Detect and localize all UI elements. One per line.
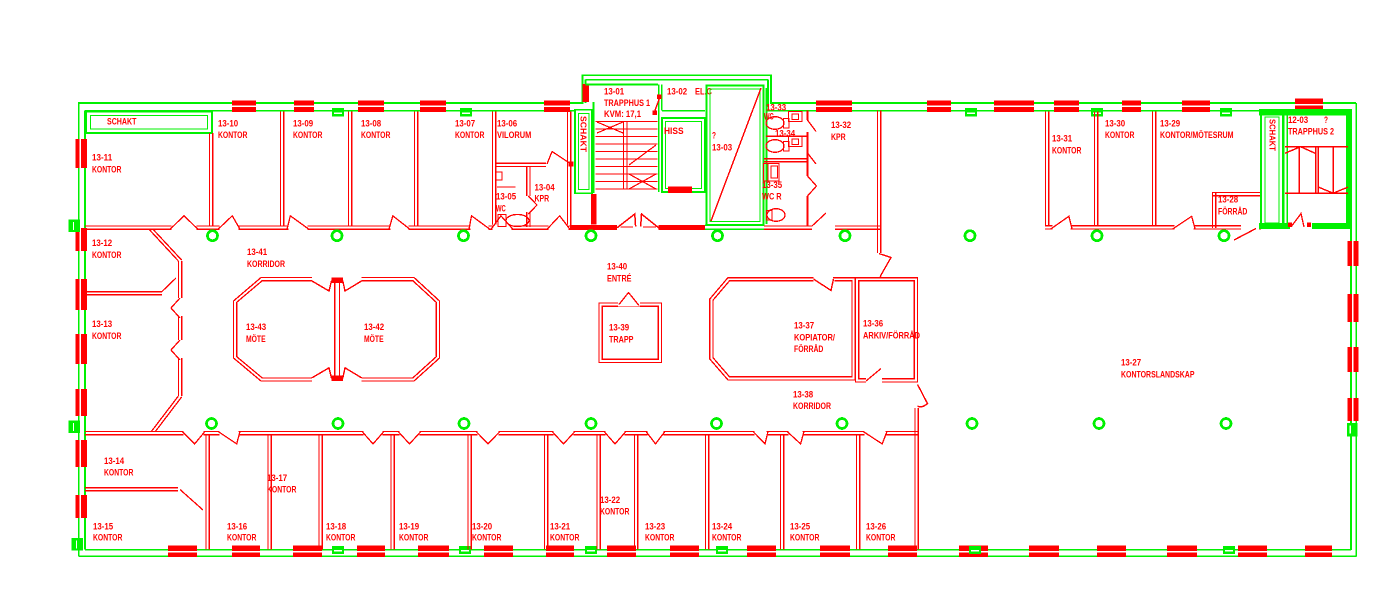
svg-text:13-27: 13-27 [1121,358,1141,369]
svg-text:KONTOR: KONTOR [1052,146,1081,157]
svg-text:KONTOR/MÖTESRUM: KONTOR/MÖTESRUM [1160,130,1234,141]
svg-text:?: ? [1324,115,1328,126]
svg-text:13-20: 13-20 [472,522,492,533]
svg-text:13-04: 13-04 [535,183,556,194]
svg-text:FÖRRÅD: FÖRRÅD [1218,207,1247,218]
svg-text:13-39: 13-39 [609,323,629,334]
svg-text:KONTOR: KONTOR [218,130,247,141]
svg-text:13-19: 13-19 [399,522,419,533]
svg-text:13-07: 13-07 [455,119,475,130]
svg-text:13-15: 13-15 [93,522,114,533]
svg-text:13-38: 13-38 [793,390,813,401]
svg-text:KONTOR: KONTOR [399,533,428,544]
svg-text:KORRIDOR: KORRIDOR [793,401,831,412]
svg-text:KONTOR: KONTOR [267,485,296,496]
svg-text:13-41: 13-41 [247,247,268,258]
svg-text:MÖTE: MÖTE [246,334,266,345]
svg-text:WC: WC [496,204,506,214]
svg-text:FÖRRÅD: FÖRRÅD [794,344,823,355]
svg-text:TRAPPHUS 1: TRAPPHUS 1 [604,98,651,109]
svg-text:13-31: 13-31 [1052,134,1073,145]
svg-text:13-21: 13-21 [550,522,571,533]
svg-text:KOPIATOR/: KOPIATOR/ [794,333,835,344]
svg-text:MÖTE: MÖTE [364,334,384,345]
svg-text:13-34: 13-34 [775,129,795,139]
svg-text:13-35: 13-35 [762,180,783,191]
svg-text:ARKIV/FÖRRÅD: ARKIV/FÖRRÅD [863,331,920,342]
svg-text:KONTOR: KONTOR [293,130,322,141]
svg-text:13-36: 13-36 [863,319,883,330]
svg-text:13-16: 13-16 [227,522,247,533]
svg-text:KPR: KPR [535,194,550,205]
svg-text:KONTOR: KONTOR [472,533,501,544]
svg-text:KONTOR: KONTOR [326,533,355,544]
svg-text:TRAPPHUS 2: TRAPPHUS 2 [1288,127,1334,138]
svg-text:KONTOR: KONTOR [227,533,256,544]
svg-text:13-43: 13-43 [246,322,266,333]
svg-text:13-37: 13-37 [794,321,814,332]
svg-text:13-32: 13-32 [831,120,851,131]
svg-text:KVM: 17,1: KVM: 17,1 [604,109,642,120]
svg-text:13-06: 13-06 [497,119,517,130]
svg-text:SCHAKT: SCHAKT [1268,119,1277,151]
svg-text:KONTORSLANDSKAP: KONTORSLANDSKAP [1121,370,1195,381]
svg-text:13-01: 13-01 [604,87,625,98]
svg-text:13-02: 13-02 [667,87,687,98]
svg-text:SCHAKT: SCHAKT [107,117,137,128]
svg-text:13-08: 13-08 [361,119,381,130]
svg-text:13-28: 13-28 [1218,195,1238,206]
svg-text:KONTOR: KONTOR [455,130,484,141]
svg-text:KONTOR: KONTOR [712,533,741,544]
svg-text:?: ? [712,131,716,142]
svg-text:TRAPP: TRAPP [609,335,634,346]
svg-text:13-13: 13-13 [92,319,112,330]
svg-text:KONTOR: KONTOR [1105,130,1134,141]
svg-text:12-03: 12-03 [1288,115,1308,126]
svg-text:13-42: 13-42 [364,322,384,333]
svg-text:KONTOR: KONTOR [93,533,122,544]
svg-text:KONTOR: KONTOR [790,533,819,544]
svg-text:13-22: 13-22 [600,495,620,506]
svg-text:13-30: 13-30 [1105,119,1125,130]
svg-text:HISS: HISS [664,126,684,137]
svg-text:KONTOR: KONTOR [866,533,895,544]
svg-text:KONTOR: KONTOR [92,250,121,261]
svg-text:SCHAKT: SCHAKT [579,116,588,152]
svg-text:KORRIDOR: KORRIDOR [247,259,285,270]
svg-text:KONTOR: KONTOR [550,533,579,544]
svg-text:ENTRÉ: ENTRÉ [607,274,632,285]
svg-text:13-23: 13-23 [645,522,665,533]
svg-text:13-17: 13-17 [267,473,287,484]
svg-text:KONTOR: KONTOR [92,331,121,342]
svg-text:VILORUM: VILORUM [497,130,531,141]
svg-text:KONTOR: KONTOR [92,165,121,176]
svg-text:13-11: 13-11 [92,153,113,164]
svg-text:KONTOR: KONTOR [645,533,674,544]
svg-text:13-40: 13-40 [607,262,627,273]
svg-text:13-18: 13-18 [326,522,346,533]
svg-text:13-24: 13-24 [712,522,733,533]
svg-text:13-14: 13-14 [104,456,125,467]
svg-text:13-12: 13-12 [92,238,112,249]
svg-text:KONTOR: KONTOR [361,130,390,141]
svg-text:13-26: 13-26 [866,522,886,533]
svg-text:13-10: 13-10 [218,119,238,130]
svg-text:KONTOR: KONTOR [104,468,133,479]
svg-text:13-09: 13-09 [293,119,313,130]
svg-text:WC R: WC R [762,192,782,203]
svg-text:13-03: 13-03 [712,143,732,154]
svg-text:WC: WC [764,112,774,122]
svg-text:13-25: 13-25 [790,522,811,533]
svg-text:13-05: 13-05 [496,192,516,202]
svg-text:13-29: 13-29 [1160,119,1180,130]
svg-text:KONTOR: KONTOR [600,507,629,518]
svg-text:KPR: KPR [831,132,846,143]
